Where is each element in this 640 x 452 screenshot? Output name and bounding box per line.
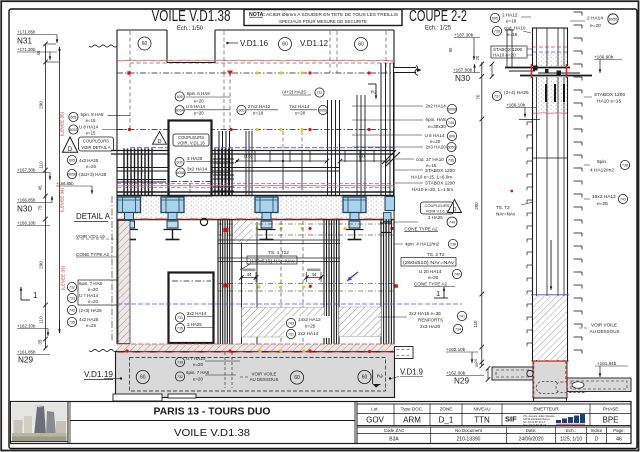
svg-text:HA10 e=15: HA10 e=15 <box>597 99 621 105</box>
svg-text:7x2 HA14: 7x2 HA14 <box>289 104 310 109</box>
svg-text:TS. T2: TS. T2 <box>496 205 510 210</box>
svg-text:e=25: e=25 <box>86 164 96 169</box>
svg-text:HA10 e=15, L=6.0m: HA10 e=15, L=6.0m <box>411 175 452 180</box>
svg-text:COUPLEURS: COUPLEURS <box>178 135 204 140</box>
svg-text:3x2 HA16 e=36: 3x2 HA16 e=36 <box>409 311 441 316</box>
svg-text:60: 60 <box>362 374 368 380</box>
svg-text:743: 743 <box>620 197 626 201</box>
svg-text:STABOX 1200: STABOX 1200 <box>425 181 455 186</box>
svg-text:1: 1 <box>436 289 440 298</box>
svg-text:6058: 6058 <box>68 172 76 176</box>
svg-text:Indice: Indice <box>591 428 603 433</box>
svg-text:(LEVEE 33): (LEVEE 33) <box>61 265 66 290</box>
svg-text:110: 110 <box>39 316 44 324</box>
svg-text:44: 44 <box>246 272 252 277</box>
svg-text:+166.10b: +166.10b <box>17 221 36 226</box>
svg-text:6pin.: 6pin. <box>597 159 607 165</box>
svg-text:D: D <box>158 139 162 145</box>
svg-text:(4+2) HA25: (4+2) HA25 <box>282 90 306 95</box>
svg-text:e=20: e=20 <box>428 275 439 280</box>
svg-text:738: 738 <box>450 242 456 246</box>
svg-text:AU DESSOUS: AU DESSOUS <box>590 329 620 334</box>
svg-text:46: 46 <box>616 437 622 443</box>
svg-text:60: 60 <box>140 374 146 380</box>
svg-text:24/06/2020: 24/06/2020 <box>518 437 543 443</box>
svg-text:14x2 HA12: 14x2 HA12 <box>298 317 321 322</box>
svg-text:e=20: e=20 <box>193 377 203 382</box>
svg-text:737: 737 <box>494 94 500 98</box>
svg-text:U 6 HA14: U 6 HA14 <box>186 104 206 109</box>
svg-text:20: 20 <box>474 359 478 363</box>
svg-text:e=18: e=18 <box>506 19 517 24</box>
svg-text:60: 60 <box>294 375 300 381</box>
svg-text:4x2 HA25: 4x2 HA25 <box>79 158 99 163</box>
svg-text:VOIR DETAIL A: VOIR DETAIL A <box>81 145 111 150</box>
svg-text:V.D1.19: V.D1.19 <box>84 370 114 379</box>
svg-text:605: 605 <box>70 115 76 119</box>
svg-text:VOIR VOILE: VOIR VOILE <box>252 372 277 377</box>
svg-text:e=20: e=20 <box>194 99 204 104</box>
svg-text:+166.85b: +166.85b <box>56 181 74 186</box>
svg-text:606: 606 <box>449 134 455 138</box>
svg-text:V.D1.9: V.D1.9 <box>400 368 424 377</box>
svg-text:3 HA25: 3 HA25 <box>187 322 202 327</box>
svg-text:SPECIAUX POUR MESURE DE SECURI: SPECIAUX POUR MESURE DE SECURITE <box>279 19 367 24</box>
svg-text:e=20: e=20 <box>88 299 98 304</box>
svg-text:6056: 6056 <box>609 17 617 21</box>
svg-text:(LEVEE 34): (LEVEE 34) <box>60 187 65 212</box>
svg-text:732: 732 <box>69 285 75 289</box>
svg-text:735: 735 <box>177 326 183 330</box>
svg-text:e=25: e=25 <box>305 324 316 329</box>
svg-text:BPE: BPE <box>602 416 618 425</box>
svg-text:16x2 HA12: 16x2 HA12 <box>592 194 616 200</box>
svg-text:2x2 HA14: 2x2 HA14 <box>298 331 319 336</box>
svg-text:45: 45 <box>36 50 41 55</box>
svg-text:Page:: Page: <box>613 428 624 433</box>
svg-text:+162.10b: +162.10b <box>17 324 36 329</box>
svg-text:736: 736 <box>448 158 454 162</box>
svg-text:e=20: e=20 <box>194 111 204 116</box>
svg-text:ARM: ARM <box>403 416 421 425</box>
svg-text:731: 731 <box>177 316 183 320</box>
svg-text:NAr=NAv: NAr=NAv <box>496 212 516 217</box>
svg-text:CONE TYPE A2: CONE TYPE A2 <box>404 226 438 231</box>
svg-text:605: 605 <box>239 108 245 112</box>
svg-text:+167.30b: +167.30b <box>454 33 474 38</box>
svg-text:45: 45 <box>38 185 43 190</box>
svg-text:70: 70 <box>475 94 480 99</box>
svg-text:TS. 2 T2: TS. 2 T2 <box>427 252 445 257</box>
svg-text:(130x510) NAr=NAv: (130x510) NAr=NAv <box>250 258 296 263</box>
svg-text:2x3 HA20: 2x3 HA20 <box>426 145 447 150</box>
svg-text:741: 741 <box>459 314 465 318</box>
svg-text:3x2 HA14: 3x2 HA14 <box>187 311 207 316</box>
svg-text:ACIER Ø6mm A SOUDER EN TETE DE: ACIER Ø6mm A SOUDER EN TETE DE TOUS LES … <box>266 12 398 17</box>
svg-text:210-13390: 210-13390 <box>457 437 481 443</box>
svg-text:D_1: D_1 <box>439 416 454 425</box>
svg-text:+167.30b: +167.30b <box>17 168 36 173</box>
svg-text:e=18: e=18 <box>253 110 264 115</box>
svg-text:290: 290 <box>474 202 479 210</box>
svg-text:CONE TYPE A2: CONE TYPE A2 <box>414 282 448 287</box>
svg-text:NIVEAU: NIVEAU <box>473 407 490 412</box>
svg-text:6pin. 7 HA8: 6pin. 7 HA8 <box>186 370 210 375</box>
svg-text:736: 736 <box>494 29 500 33</box>
svg-text:STABOX 1200: STABOX 1200 <box>594 92 625 98</box>
svg-text:e=20: e=20 <box>295 110 306 115</box>
svg-text:(LEVEE 35): (LEVEE 35) <box>60 111 65 136</box>
svg-text:N30: N30 <box>455 74 470 83</box>
svg-text:PARIS 13 - TOURS DUO: PARIS 13 - TOURS DUO <box>154 406 271 418</box>
svg-text:STABOX 1200: STABOX 1200 <box>425 168 455 173</box>
svg-text:V.D1.12: V.D1.12 <box>300 39 329 48</box>
svg-text:(3x2+3) HA25: (3x2+3) HA25 <box>79 172 107 177</box>
svg-text:4pin. 4 HA12/m2: 4pin. 4 HA12/m2 <box>405 242 440 247</box>
svg-text:110: 110 <box>39 161 44 169</box>
svg-text:20: 20 <box>475 55 480 60</box>
svg-text:e=30x30: e=30x30 <box>428 124 446 129</box>
svg-text:Ech.: 1/50: Ech.: 1/50 <box>177 26 204 32</box>
svg-text:HA10 e=20, L=1.5m: HA10 e=20, L=1.5m <box>412 187 453 192</box>
svg-text:60: 60 <box>282 41 288 47</box>
svg-text:COUPE 2-2: COUPE 2-2 <box>409 8 467 25</box>
svg-text:1: 1 <box>33 291 38 300</box>
svg-text:PHASE: PHASE <box>603 407 619 412</box>
svg-text:N31: N31 <box>17 37 32 46</box>
svg-text:U 7 HA14: U 7 HA14 <box>186 356 206 361</box>
svg-text:605: 605 <box>69 158 75 162</box>
svg-text:734: 734 <box>455 327 461 331</box>
svg-text:Date:: Date: <box>526 428 537 433</box>
svg-text:735: 735 <box>69 320 75 324</box>
svg-text:AU DESSOUS: AU DESSOUS <box>250 377 279 382</box>
svg-text:2x2 HA14: 2x2 HA14 <box>426 104 447 109</box>
svg-text:44: 44 <box>311 272 317 277</box>
svg-text:60: 60 <box>358 41 364 47</box>
svg-text:U 8 HA14: U 8 HA14 <box>79 125 99 130</box>
svg-text:2 HA14: 2 HA14 <box>587 16 603 22</box>
svg-text:TTN: TTN <box>474 416 490 425</box>
svg-text:e=20: e=20 <box>88 287 98 292</box>
svg-text:VOIR VOILE: VOIR VOILE <box>591 323 617 328</box>
svg-text:RENFORTS: RENFORTS <box>418 318 443 323</box>
svg-text:GOV: GOV <box>366 416 384 425</box>
svg-text:B3A: B3A <box>389 437 399 443</box>
svg-text:2: 2 <box>370 90 377 94</box>
svg-text:605: 605 <box>492 16 498 20</box>
svg-text:e=20: e=20 <box>590 23 601 29</box>
svg-text:3 HA25: 3 HA25 <box>187 156 203 161</box>
svg-text:N29: N29 <box>18 356 33 365</box>
svg-text:EMETTEUR: EMETTEUR <box>533 407 559 412</box>
svg-text:27x2 HA12: 27x2 HA12 <box>248 104 271 109</box>
svg-text:1/25; 1/10: 1/25; 1/10 <box>560 437 582 443</box>
svg-text:605: 605 <box>177 160 183 164</box>
svg-text:(2+3) HA25: (2+3) HA25 <box>79 308 102 313</box>
svg-text:4x2 HA25: 4x2 HA25 <box>79 317 99 322</box>
svg-text:740: 740 <box>454 272 460 276</box>
svg-text:3 HA25: 3 HA25 <box>428 215 443 220</box>
svg-text:Code ZAC: Code ZAC <box>384 428 405 433</box>
svg-text:cod. 37 HA10: cod. 37 HA10 <box>416 157 444 162</box>
svg-text:SIF: SIF <box>505 415 517 424</box>
svg-text:VOIR. V.D1.16: VOIR. V.D1.16 <box>177 141 205 146</box>
svg-text:+167.00b: +167.00b <box>453 68 473 73</box>
svg-text:+162.00b: +162.00b <box>446 371 466 376</box>
svg-text:6053: 6053 <box>69 128 77 132</box>
svg-text:N29: N29 <box>454 377 469 386</box>
svg-text:(260x510) NAr=NAv: (260x510) NAr=NAv <box>403 260 455 265</box>
svg-text:COUPLEURS: COUPLEURS <box>425 203 450 208</box>
svg-text:6pin. 6 HA8: 6pin. 6 HA8 <box>187 91 211 96</box>
svg-text:+161.85b: +161.85b <box>17 350 36 355</box>
svg-text:(2+4) HA25: (2+4) HA25 <box>504 90 529 96</box>
svg-text:Ech.:: Ech.: <box>566 428 576 433</box>
svg-text:6058: 6058 <box>177 171 185 175</box>
svg-text:739: 739 <box>177 360 183 364</box>
svg-text:744: 744 <box>449 220 455 224</box>
svg-text:290: 290 <box>39 101 44 109</box>
svg-text:3x2 HA14: 3x2 HA14 <box>187 167 208 172</box>
svg-text:2x3 HA20: 2x3 HA20 <box>420 324 441 329</box>
svg-text:épin. HA8: épin. HA8 <box>426 117 447 122</box>
svg-text:6058: 6058 <box>448 107 456 111</box>
svg-text:90: 90 <box>448 47 453 52</box>
svg-text:731: 731 <box>288 332 294 336</box>
svg-text:Lot.: Lot. <box>371 407 379 412</box>
svg-text:COUPLEURS: COUPLEURS <box>83 139 109 144</box>
svg-text:+166.90b: +166.90b <box>594 55 614 60</box>
svg-text:e=20: e=20 <box>193 362 203 367</box>
svg-text:VOIR V.D1.19: VOIR V.D1.19 <box>76 234 105 239</box>
svg-text:737: 737 <box>317 91 323 95</box>
svg-text:e=20: e=20 <box>430 139 441 144</box>
svg-text:Ech.: 1/25: Ech.: 1/25 <box>425 26 452 32</box>
svg-text:+171.30b: +171.30b <box>17 47 36 52</box>
svg-text:D: D <box>453 207 457 213</box>
svg-text:6055: 6055 <box>448 145 456 149</box>
svg-text:738: 738 <box>622 163 628 167</box>
svg-text:605: 605 <box>177 95 183 99</box>
svg-text:U 7 HA14: U 7 HA14 <box>79 293 99 298</box>
svg-text:290: 290 <box>39 261 44 269</box>
svg-text:ZONE: ZONE <box>440 407 453 412</box>
svg-text:VOILE V.D1.38: VOILE V.D1.38 <box>174 427 250 439</box>
svg-text:6054: 6054 <box>176 109 184 113</box>
svg-text:60: 60 <box>142 41 148 47</box>
svg-text:745: 745 <box>448 121 454 125</box>
svg-text:742: 742 <box>69 308 75 312</box>
svg-text:Type DOC.: Type DOC. <box>401 407 424 412</box>
svg-text:6pin. 8 HA8: 6pin. 8 HA8 <box>81 112 105 117</box>
svg-text:U 6 HA14: U 6 HA14 <box>425 133 445 138</box>
svg-text:DUO: DUO <box>35 405 43 409</box>
svg-text:+166.10b: +166.10b <box>506 103 526 108</box>
svg-text:CONE TYPE A2: CONE TYPE A2 <box>76 252 110 257</box>
svg-text:e=25: e=25 <box>597 201 608 207</box>
svg-text:+166.85b: +166.85b <box>17 198 36 203</box>
svg-text:6pin. 7 HA8: 6pin. 7 HA8 <box>79 281 103 286</box>
svg-text:No Document: No Document <box>455 428 483 433</box>
svg-text:733: 733 <box>69 296 75 300</box>
svg-text:VOIR V.D1.9: VOIR V.D1.9 <box>426 209 450 214</box>
svg-text:U 20 HA14: U 20 HA14 <box>419 269 442 274</box>
svg-text:D: D <box>68 147 73 153</box>
svg-text:VOILE V.D1.38: VOILE V.D1.38 <box>152 8 231 25</box>
svg-text:HA10 e=20: HA10 e=20 <box>493 53 516 58</box>
svg-text:TS. 1 T22: TS. 1 T22 <box>268 250 289 256</box>
svg-text:e=15: e=15 <box>86 131 96 136</box>
svg-text:D: D <box>595 437 599 443</box>
svg-text:732: 732 <box>177 375 183 379</box>
svg-text:2 HA12: 2 HA12 <box>502 13 518 18</box>
svg-text:+161.84b: +161.84b <box>597 361 617 366</box>
svg-text:N30: N30 <box>17 205 32 214</box>
svg-text:DETAIL A: DETAIL A <box>76 212 111 221</box>
svg-text:6056: 6056 <box>319 108 327 112</box>
svg-text:STABOX 1200: STABOX 1200 <box>493 47 523 52</box>
svg-text:4 HA12/m2: 4 HA12/m2 <box>590 168 614 174</box>
svg-text:110: 110 <box>473 320 478 328</box>
svg-text:743: 743 <box>288 321 294 325</box>
svg-text:e=25: e=25 <box>86 323 96 328</box>
svg-text:2: 2 <box>376 374 383 378</box>
svg-text:+171.85b: +171.85b <box>17 30 36 35</box>
svg-text:35: 35 <box>38 339 43 344</box>
svg-text:+162.10b: +162.10b <box>446 347 466 352</box>
svg-text:e=15: e=15 <box>86 118 96 123</box>
svg-text:75: 75 <box>38 205 43 210</box>
svg-text:V.D1.16: V.D1.16 <box>240 39 269 48</box>
